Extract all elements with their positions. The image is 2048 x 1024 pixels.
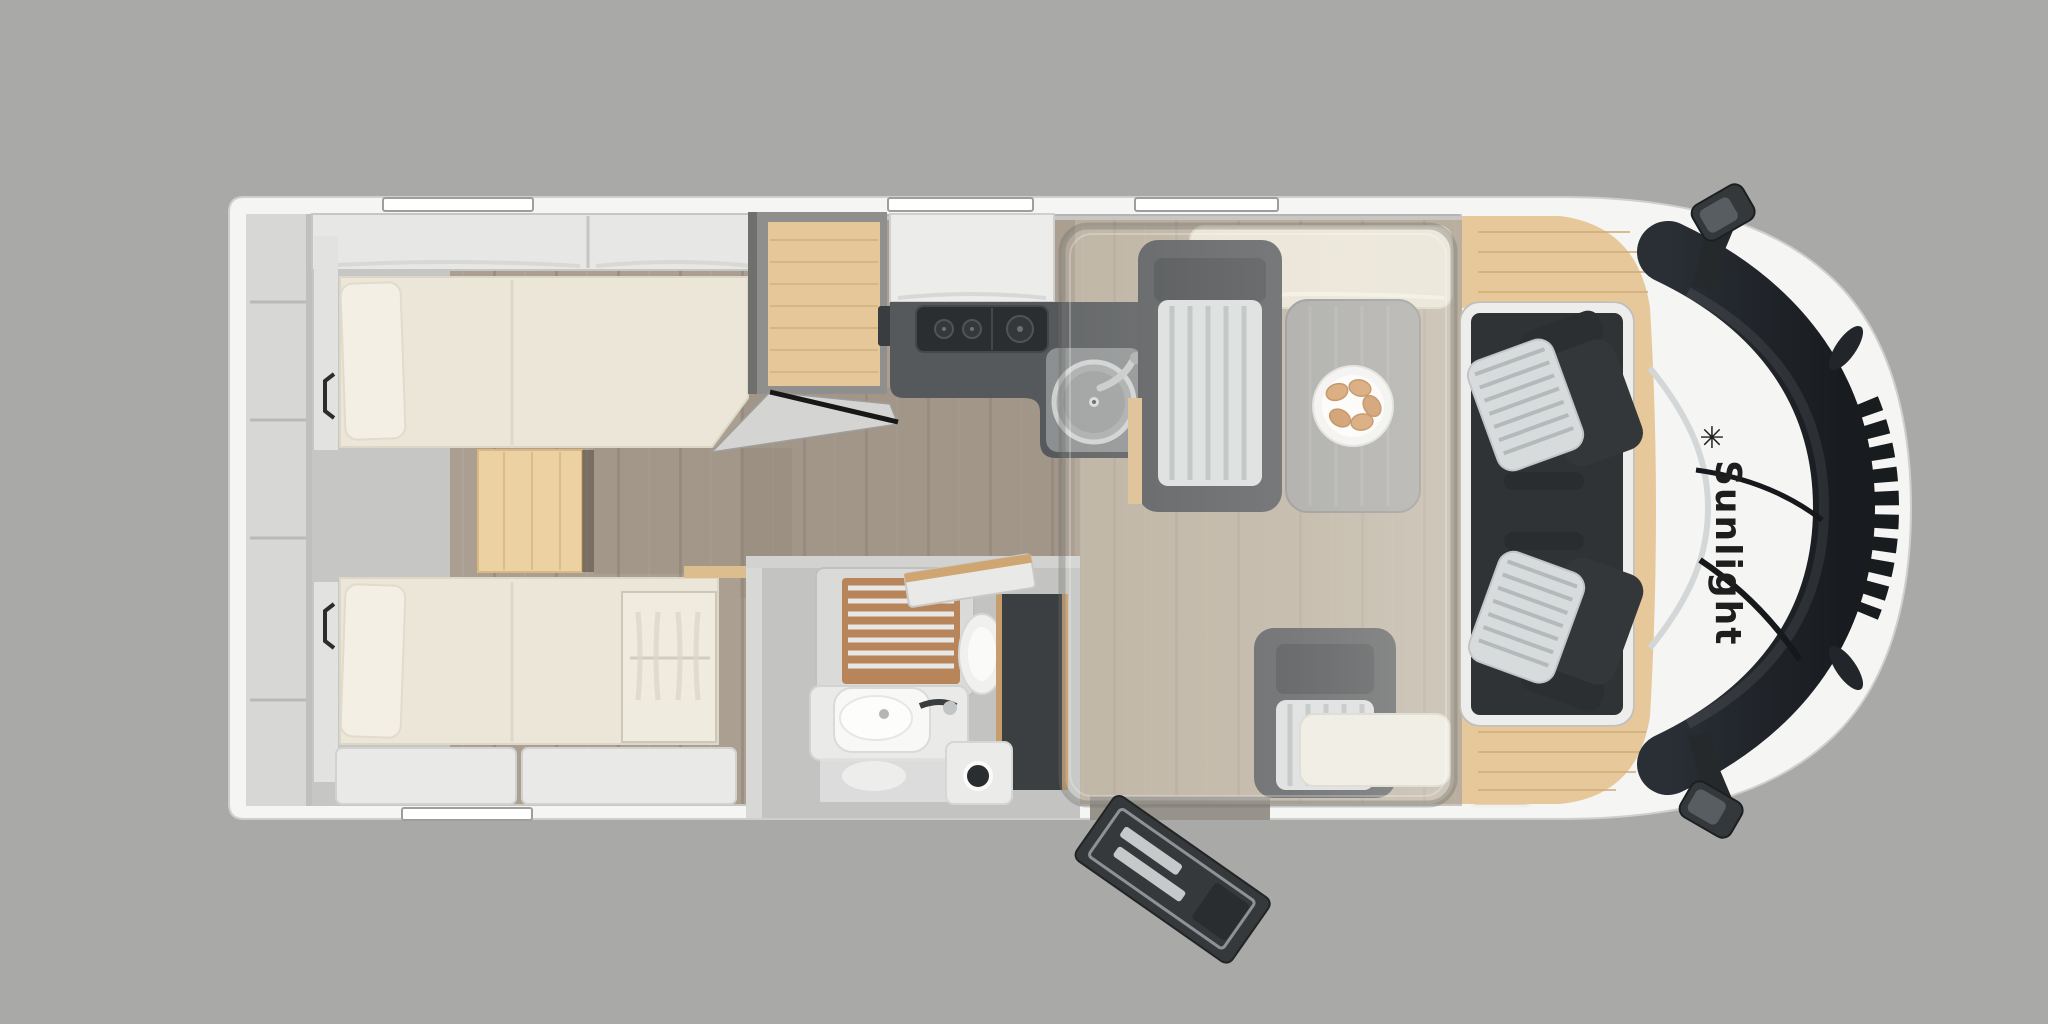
armrest bbox=[1504, 472, 1584, 490]
motorhome-floorplan-view: ✳ Sunlight bbox=[0, 0, 2048, 1024]
armrest bbox=[1504, 532, 1584, 550]
window-strip bbox=[383, 198, 533, 211]
toilet-lid bbox=[968, 627, 996, 681]
bed-top-pillow bbox=[340, 282, 405, 440]
window-strip bbox=[888, 198, 1033, 211]
overhead-lockers-top bbox=[312, 214, 758, 270]
dropdown-bed-overlay bbox=[1062, 226, 1454, 804]
bed-bottom-pillow bbox=[340, 584, 405, 738]
floorplan-rendering: ✳ Sunlight bbox=[0, 0, 2048, 1024]
table-unit-wood-top bbox=[768, 222, 880, 386]
bed-top-headboard bbox=[314, 236, 338, 450]
bathroom bbox=[746, 554, 1080, 818]
rear-shelf-edge bbox=[306, 214, 312, 806]
bedroom-step bbox=[478, 450, 594, 572]
window-strip bbox=[402, 808, 532, 820]
wall-socket bbox=[878, 306, 892, 346]
wardrobe-ghost bbox=[622, 592, 716, 742]
window-strip bbox=[1135, 198, 1278, 211]
stove bbox=[916, 306, 1048, 352]
brand-logo-star-icon: ✳ bbox=[1699, 421, 1724, 456]
brand-logo-text: Sunlight bbox=[1707, 460, 1748, 646]
bed-front-boxes bbox=[336, 748, 736, 804]
kitchen-overhead-cabinet bbox=[890, 214, 1054, 302]
drain-icon bbox=[965, 763, 991, 789]
